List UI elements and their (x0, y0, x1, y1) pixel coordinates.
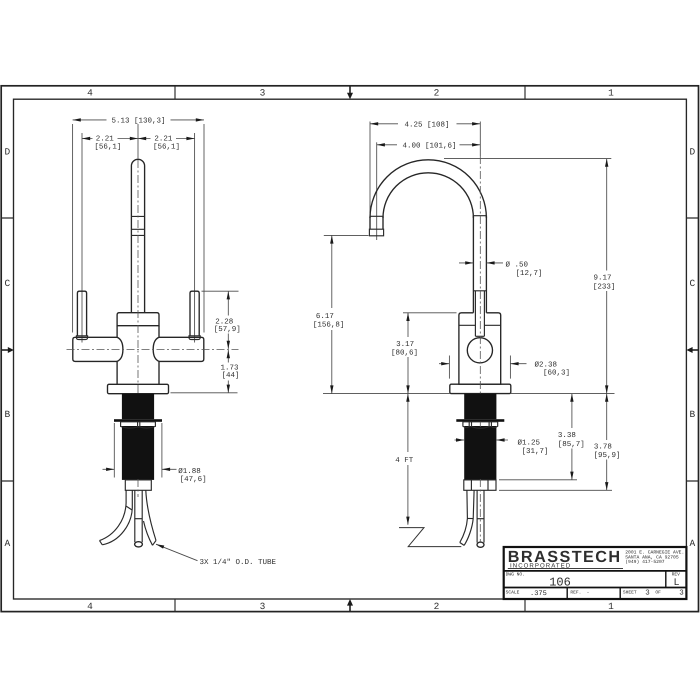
svg-text:A: A (5, 538, 11, 549)
svg-text:4.00 [101,6]: 4.00 [101,6] (402, 142, 456, 151)
svg-text:[60,3]: [60,3] (543, 369, 570, 378)
svg-text:[12,7]: [12,7] (516, 269, 543, 278)
svg-text:-: - (587, 589, 590, 595)
svg-text:2: 2 (434, 87, 440, 98)
svg-text:[57,9]: [57,9] (214, 325, 241, 334)
svg-text:[31,7]: [31,7] (522, 447, 549, 456)
svg-text:2.21: 2.21 (96, 135, 115, 144)
svg-text:3: 3 (260, 601, 266, 612)
svg-text:[80,6]: [80,6] (391, 349, 418, 358)
svg-text:OF: OF (655, 590, 661, 596)
svg-text:C: C (5, 278, 11, 289)
svg-text:[95,9]: [95,9] (593, 451, 620, 460)
svg-text:(949) 417-5207: (949) 417-5207 (625, 559, 665, 565)
svg-text:9.17: 9.17 (593, 273, 611, 282)
svg-text:[56,1]: [56,1] (153, 143, 180, 152)
svg-text:SHEET: SHEET (623, 590, 637, 596)
svg-text:INCORPORATED: INCORPORATED (510, 562, 571, 569)
svg-text:.375: .375 (530, 590, 547, 598)
svg-text:REV: REV (672, 571, 681, 577)
svg-text:DWG NO.: DWG NO. (506, 571, 525, 577)
svg-text:[156,8]: [156,8] (313, 320, 345, 329)
svg-text:3X 1/4" O.D. TUBE: 3X 1/4" O.D. TUBE (200, 558, 277, 567)
svg-text:4 FT: 4 FT (395, 457, 414, 465)
svg-text:REF.: REF. (570, 590, 581, 596)
svg-text:B: B (690, 409, 696, 420)
svg-text:3.78: 3.78 (594, 442, 612, 451)
svg-text:D: D (5, 147, 11, 158)
svg-text:D: D (690, 147, 696, 158)
svg-text:3: 3 (679, 589, 684, 598)
svg-text:L: L (673, 578, 679, 589)
svg-text:Ø1.25: Ø1.25 (518, 439, 541, 448)
svg-text:[233]: [233] (593, 283, 616, 292)
svg-text:Ø .50: Ø .50 (506, 260, 529, 269)
svg-text:1: 1 (608, 601, 614, 612)
svg-text:4.25 [108]: 4.25 [108] (404, 121, 449, 130)
svg-text:[85,7]: [85,7] (558, 440, 585, 449)
svg-text:4: 4 (87, 87, 93, 98)
svg-text:[44]: [44] (221, 371, 239, 380)
svg-text:1: 1 (608, 87, 614, 98)
svg-text:2.21: 2.21 (154, 135, 173, 144)
svg-text:3.38: 3.38 (558, 431, 576, 440)
svg-text:C: C (690, 278, 696, 289)
svg-text:Ø1.88: Ø1.88 (178, 467, 201, 476)
svg-text:Ø2.38: Ø2.38 (535, 360, 558, 369)
svg-text:[47,6]: [47,6] (180, 475, 207, 484)
svg-text:A: A (690, 538, 696, 549)
svg-text:3: 3 (645, 589, 650, 598)
svg-text:4: 4 (87, 601, 93, 612)
svg-text:3: 3 (260, 87, 266, 98)
svg-text:6.17: 6.17 (316, 312, 334, 321)
svg-text:106: 106 (549, 575, 571, 589)
svg-text:[56,1]: [56,1] (94, 143, 121, 152)
svg-text:5.13 [130,3]: 5.13 [130,3] (111, 117, 165, 126)
svg-text:B: B (5, 409, 11, 420)
svg-text:SCALE: SCALE (506, 590, 520, 596)
svg-text:2: 2 (434, 601, 440, 612)
svg-text:3.17: 3.17 (396, 340, 414, 349)
